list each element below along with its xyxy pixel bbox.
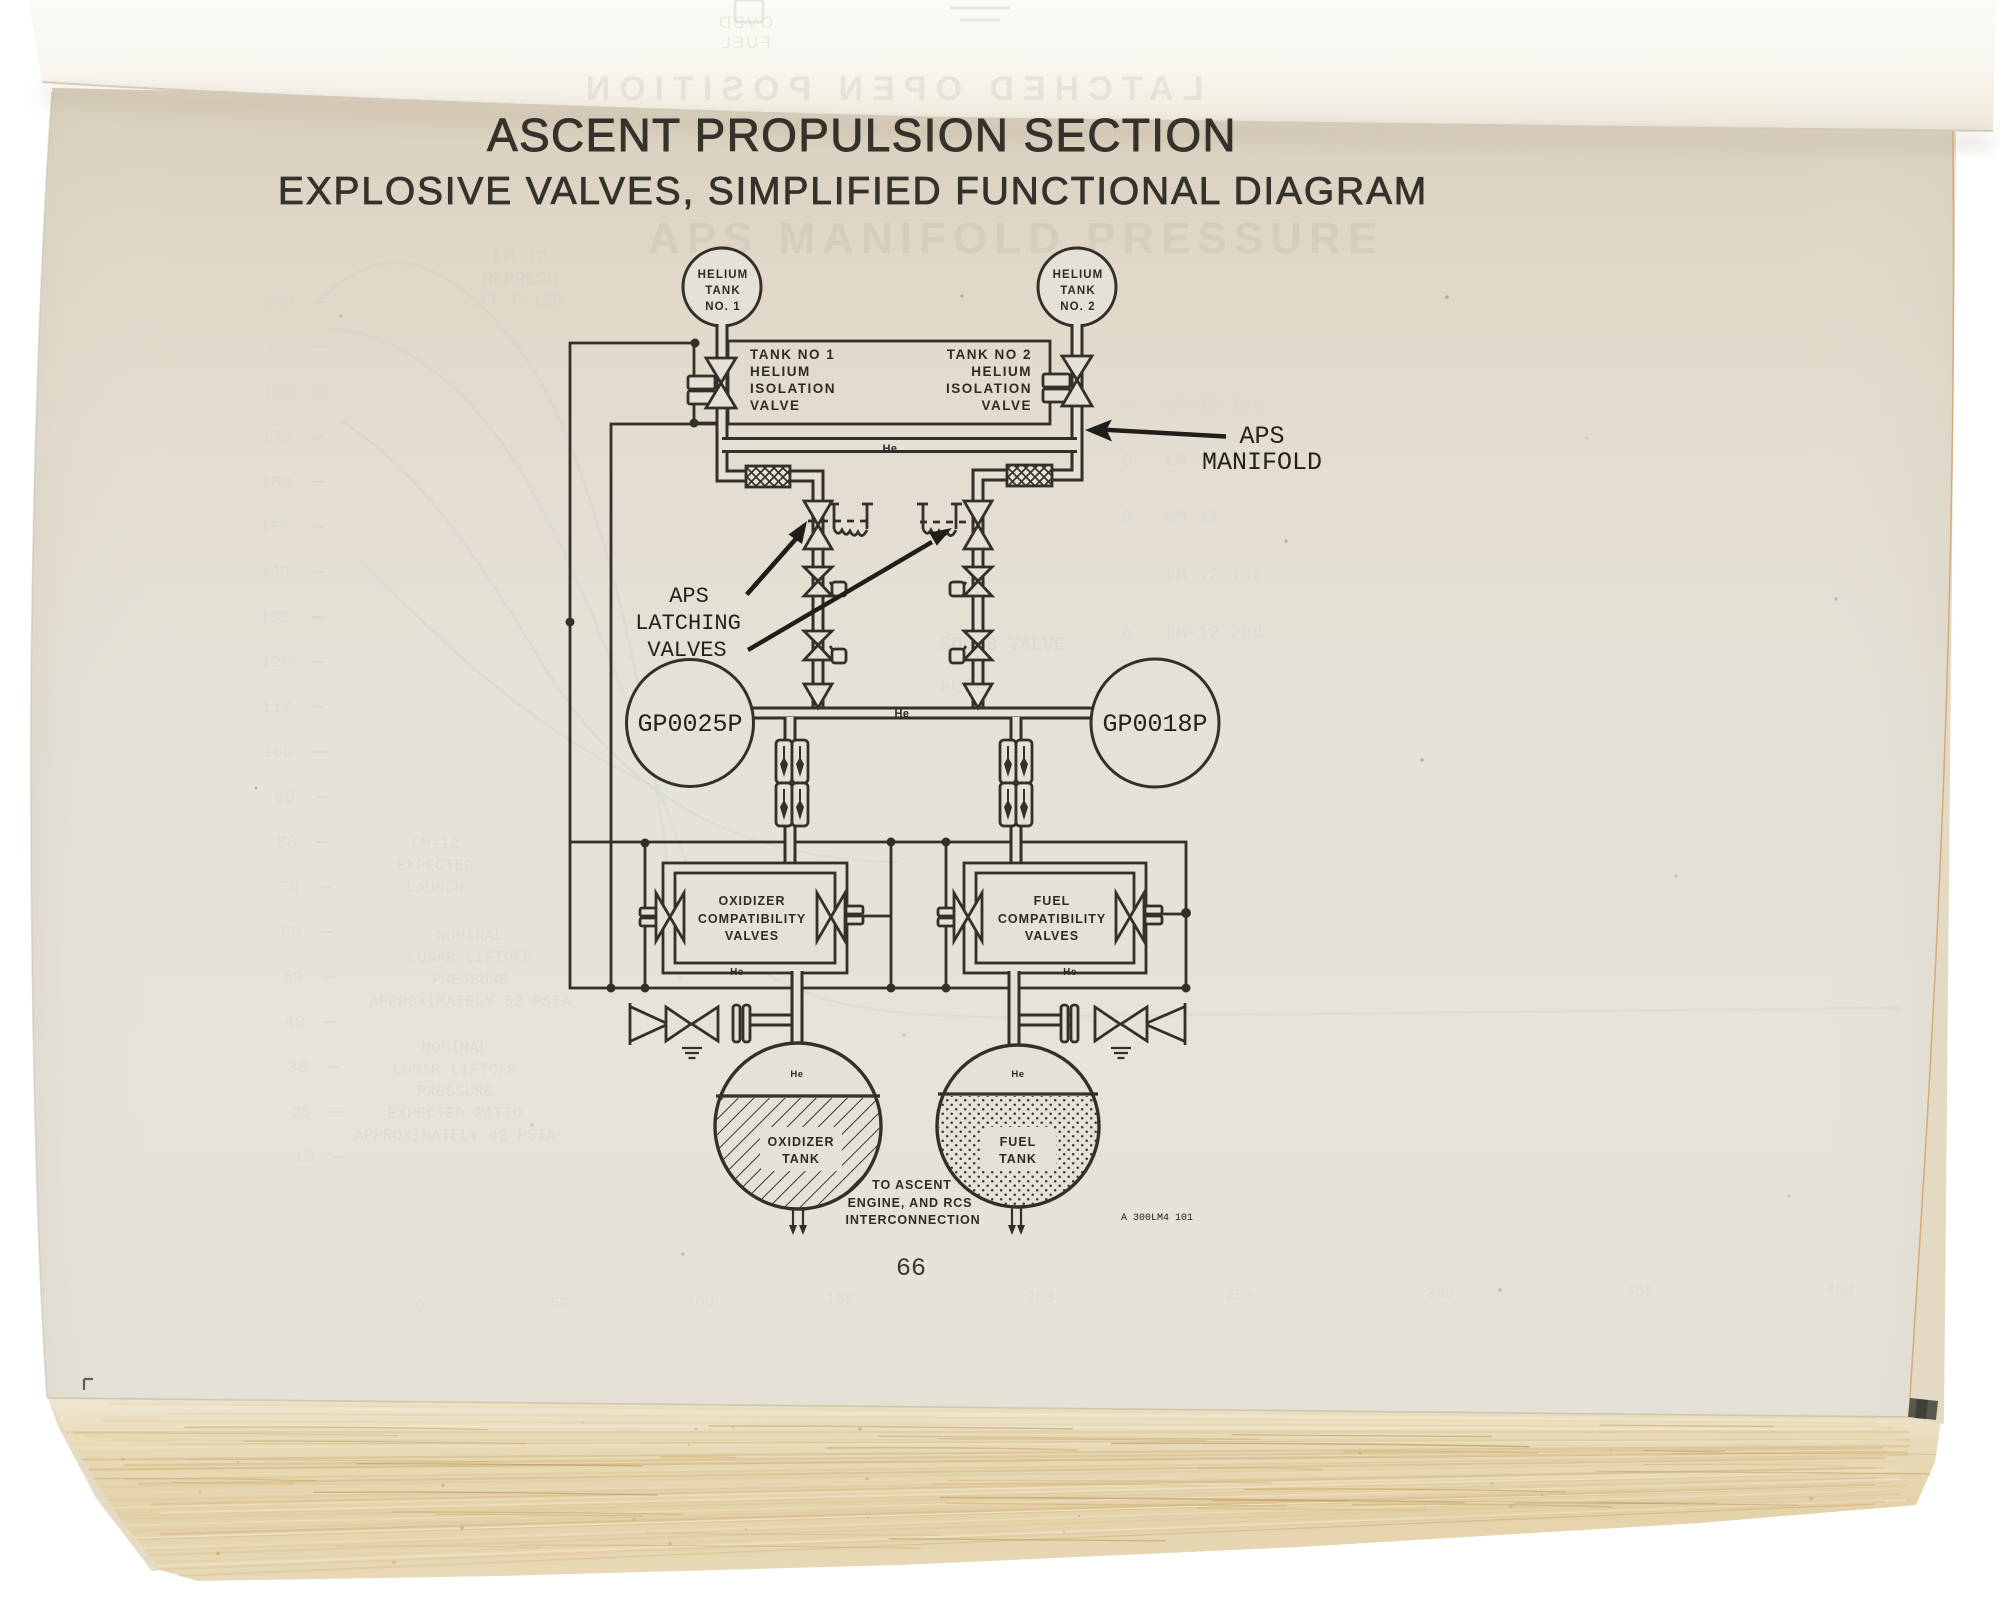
svg-text:ENGINE, AND RCS: ENGINE, AND RCS [848,1196,973,1210]
svg-text:TANK: TANK [782,1152,820,1166]
svg-text:COMPATIBILITY: COMPATIBILITY [698,912,806,926]
svg-text:140: 140 [259,564,290,583]
svg-text:20: 20 [291,1104,311,1123]
svg-text:EXPECTED: EXPECTED [397,857,474,875]
svg-text:100: 100 [262,744,293,763]
svg-text:ISOLATION: ISOLATION [946,381,1032,396]
svg-text:OXIDIZER: OXIDIZER [718,894,785,908]
svg-text:HELIUM: HELIUM [750,364,811,379]
svg-text:APS MANIFOLD PRESSURE: APS MANIFOLD PRESSURE [648,214,1384,263]
svg-text:He: He [790,1069,803,1080]
svg-text:100: 100 [686,1293,715,1311]
svg-text:HELIUM: HELIUM [971,364,1032,379]
svg-text:TANK: TANK [1060,285,1096,297]
svg-text:160: 160 [260,474,291,493]
svg-text:GP0018P: GP0018P [1102,710,1207,739]
svg-text:TANK NO 2: TANK NO 2 [947,347,1032,362]
svg-text:APPROXIMATELY 52 PSIA: APPROXIMATELY 52 PSIA [369,993,571,1011]
svg-text:NO. 2: NO. 2 [1060,301,1096,313]
svg-text:NOMINAL: NOMINAL [421,1039,488,1057]
svg-text:HELIUM: HELIUM [1053,269,1104,281]
svg-text:TANK NO 1: TANK NO 1 [750,347,835,362]
svg-text:80: 80 [277,834,297,853]
svg-text:300: 300 [1426,1285,1455,1303]
svg-text:TANK: TANK [705,285,741,297]
svg-text:◇ LM-12 2nd: ◇ LM-12 2nd [1122,624,1262,644]
svg-text:ASCENT PROPULSION SECTION: ASCENT PROPULSION SECTION [487,109,1237,161]
svg-text:130: 130 [259,609,290,628]
svg-text:LM-12: LM-12 [411,835,459,853]
svg-text:10: 10 [294,1149,314,1168]
svg-text:He: He [730,967,744,978]
svg-text:PRESSURE: PRESSURE [432,971,509,989]
svg-text:VALVE: VALVE [981,398,1032,413]
svg-text:REPRESS: REPRESS [482,270,558,290]
svg-text:□ LM-12 1st: □ LM-12 1st [1122,566,1262,586]
svg-text:EXPECTED RATIO: EXPECTED RATIO [388,1105,522,1123]
svg-text:70: 70 [279,879,299,898]
svg-text:30: 30 [288,1059,308,1078]
svg-text:0: 0 [415,1297,425,1315]
svg-text:110: 110 [261,699,292,718]
svg-text:COMPATIBILITY: COMPATIBILITY [998,912,1106,926]
svg-text:He: He [1063,967,1077,978]
svg-text:VALVE: VALVE [750,398,801,413]
svg-text:PRESSURE: PRESSURE [417,1083,494,1101]
svg-text:HELIUM: HELIUM [698,269,749,281]
svg-text:180: 180 [262,384,293,403]
svg-text:FUEL: FUEL [1000,1135,1037,1149]
svg-text:200: 200 [264,294,295,313]
svg-text:ISOLATION: ISOLATION [750,381,836,396]
svg-text:INTERCONNECTION: INTERCONNECTION [845,1213,980,1227]
svg-text:MANIFOLD: MANIFOLD [1202,448,1322,477]
svg-text:GP0025P: GP0025P [637,710,742,739]
svg-text:LATCHED OPEN POSITION: LATCHED OPEN POSITION [577,70,1204,108]
svg-text:40: 40 [285,1014,305,1033]
svg-text:LUNAR LIFTOFF: LUNAR LIFTOFF [393,1061,518,1079]
svg-text:He: He [894,708,909,720]
svg-text:VALVES: VALVES [725,929,779,943]
svg-text:VALVES: VALVES [647,638,726,663]
svg-text:He: He [882,443,897,455]
svg-text:He: He [1011,1069,1024,1080]
svg-text:FUEL: FUEL [1034,894,1071,908]
svg-text:X LM-10 1st: X LM-10 1st [1122,396,1262,416]
svg-text:OXIDIZER: OXIDIZER [767,1135,834,1149]
svg-text:250: 250 [1226,1287,1255,1305]
svg-text:120: 120 [260,654,291,673]
svg-text:170: 170 [261,429,292,448]
svg-text:FUEL: FUEL [719,33,770,52]
svg-text:150: 150 [259,519,290,538]
svg-text:LATCHING: LATCHING [635,611,741,636]
svg-text:A 300LM4 101: A 300LM4 101 [1121,1213,1193,1224]
svg-text:TANK: TANK [999,1152,1037,1166]
svg-text:APPROXIMATELY 42 PSIA: APPROXIMATELY 42 PSIA [354,1127,556,1145]
svg-text:150: 150 [826,1291,855,1309]
svg-text:NO. 1: NO. 1 [705,301,741,313]
svg-text:VALVES: VALVES [1025,929,1079,943]
svg-text:APS: APS [1239,422,1284,451]
svg-text:200: 200 [1026,1289,1055,1307]
svg-text:190: 190 [264,339,295,358]
svg-text:90: 90 [275,789,295,808]
svg-text:LAUNCH: LAUNCH [406,879,464,897]
svg-text:400: 400 [1826,1281,1855,1299]
svg-text:TO ASCENT: TO ASCENT [872,1178,952,1192]
svg-text:NOMINAL: NOMINAL [436,927,503,945]
svg-text:APS: APS [669,584,709,609]
svg-text:EXPLOSIVE VALVES, SIMPLIFIED F: EXPLOSIVE VALVES, SIMPLIFIED FUNCTIONAL … [278,170,1428,213]
svg-text:LM-12: LM-12 [493,248,547,268]
svg-text:Δ LM-11: Δ LM-11 [1122,508,1219,528]
svg-text:66: 66 [896,1254,926,1283]
svg-text:50: 50 [550,1295,569,1313]
svg-text:350: 350 [1626,1283,1655,1301]
svg-text:LUNAR LIFTOFF: LUNAR LIFTOFF [408,949,533,967]
svg-text:AT T-100: AT T-100 [477,292,563,312]
svg-text:50: 50 [283,969,303,988]
svg-text:60: 60 [281,924,301,943]
